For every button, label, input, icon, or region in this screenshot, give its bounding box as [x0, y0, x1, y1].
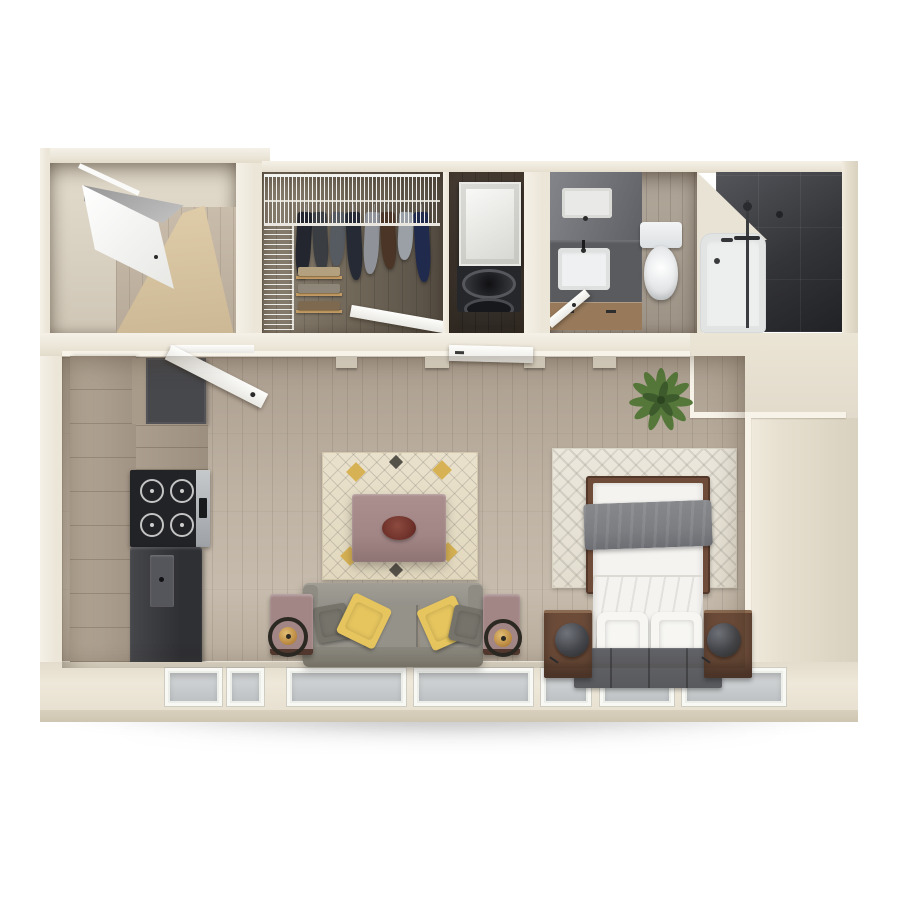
closet-shelf [296, 293, 342, 296]
potted-plant [629, 367, 693, 431]
faucet-reflection [583, 216, 588, 221]
sink-reflection [562, 188, 612, 218]
tub-drain [714, 258, 720, 264]
centerpiece-bowl [382, 516, 416, 540]
floor-plan-scene [0, 0, 900, 900]
washer-dryer-top [459, 182, 521, 266]
table-lamp-left [555, 623, 589, 657]
range-display [199, 498, 207, 518]
rug-dark-diamond [389, 563, 403, 577]
burner [170, 513, 194, 537]
shower-rod [746, 200, 749, 328]
room-laundry [449, 172, 524, 333]
refrigerator-lock [159, 577, 164, 582]
washer-dryer-front [457, 266, 521, 312]
arc-floor-lamp-right [484, 619, 522, 657]
refrigerator-handle-panel [150, 555, 174, 607]
rug-dark-diamond [389, 455, 403, 469]
toilet-tank [640, 222, 682, 248]
entry-door-handle [154, 255, 158, 259]
laundry-door-handle [455, 351, 464, 354]
toilet-bowl [644, 246, 678, 300]
closet-shelf [296, 276, 342, 279]
shower-handle-bar [734, 236, 760, 240]
folded-clothes [298, 267, 340, 276]
entry-interior-door-handle [249, 391, 256, 398]
dryer-door-ring [464, 298, 514, 312]
wire-shelf-rail [264, 200, 440, 202]
laundry-door-top [449, 345, 533, 363]
baseboard-bump-bottom [690, 412, 846, 418]
window [165, 668, 222, 706]
table-lamp-right [707, 623, 741, 657]
bathroom-door-handle [572, 303, 576, 307]
drop-shadow-far [90, 724, 810, 740]
room-bathroom [550, 172, 697, 333]
ottoman-coffee-table [352, 494, 446, 562]
shower-head [743, 202, 752, 211]
kitchen-base-cabinets [70, 356, 136, 662]
door-jamb [593, 356, 616, 368]
window [227, 668, 264, 706]
faucet-base [581, 248, 586, 253]
room-closet [262, 172, 443, 333]
folded-clothes [298, 284, 340, 293]
burner [140, 479, 164, 503]
foot-runner-blanket [574, 648, 722, 688]
vanity-counter [550, 240, 642, 302]
gray-throw-blanket [583, 500, 713, 550]
lamp-stem [286, 634, 291, 639]
refrigerator [130, 547, 202, 666]
drawer-pull [606, 310, 616, 313]
wall-left-upper [40, 148, 50, 333]
burner [140, 513, 164, 537]
arc-floor-lamp-left [268, 617, 308, 657]
lamp-stem [501, 636, 506, 641]
door-jamb [425, 356, 449, 368]
vanity-mirror [550, 172, 642, 240]
wire-shelf-left [264, 226, 294, 330]
rug-gold-diamond [346, 462, 366, 482]
sofa [303, 583, 483, 667]
wall-entry-closet [236, 163, 262, 333]
closet-door [350, 305, 443, 333]
vanity-sink [558, 248, 610, 290]
window [287, 668, 406, 706]
tub-faucet [721, 238, 733, 242]
bathtub [700, 233, 766, 333]
rug-gold-diamond [432, 460, 452, 480]
burner [170, 479, 194, 503]
range-control-panel [196, 470, 210, 547]
range-cooktop [130, 470, 210, 547]
sofa-front [303, 647, 483, 667]
room-entry [50, 163, 236, 333]
kitchen-mid-drawers [136, 424, 208, 470]
folded-clothes [298, 301, 340, 310]
closet-shelf [296, 310, 342, 313]
wall-laundry-bath [524, 172, 550, 333]
window [414, 668, 533, 706]
wall-top-left [40, 148, 270, 163]
shower-head-wall [776, 211, 783, 218]
wall-bottom-face [40, 710, 858, 722]
door-jamb [336, 356, 357, 368]
washer-door-ring [462, 269, 516, 299]
